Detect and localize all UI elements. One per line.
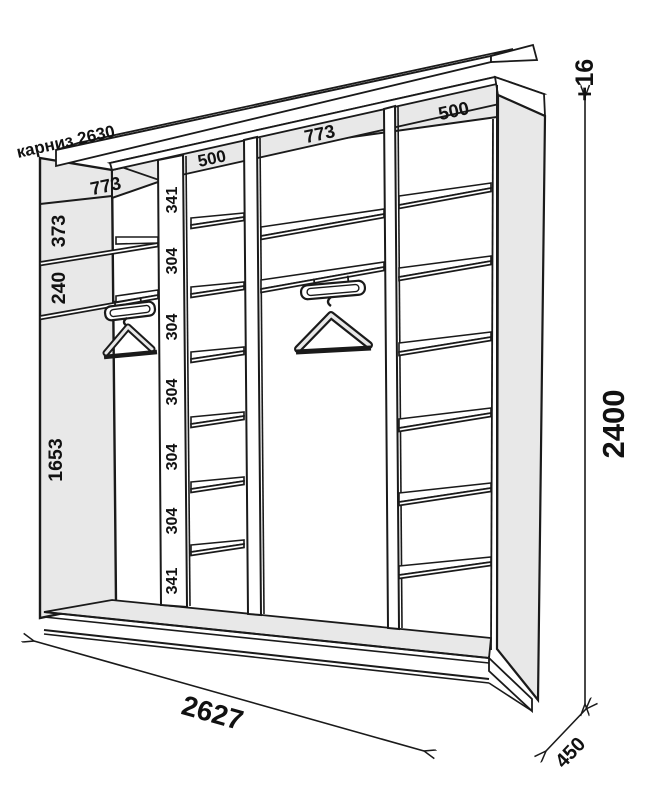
left-dim-label-1: 373: [48, 215, 70, 248]
wardrobe-dimension-diagram: +16 2400 2627 450 карниз 2630 773 500 77…: [0, 0, 650, 800]
shelf-dim-label-2: 304: [164, 248, 181, 275]
shelf-dim-label-1: 341: [164, 187, 181, 214]
section-3-shelves: [261, 209, 384, 293]
width-total-label: 2627: [178, 690, 246, 737]
left-dim-label-2: 240: [48, 272, 70, 305]
height-total-label: 2400: [596, 390, 631, 459]
diagram-canvas: +16 2400 2627 450 карниз 2630 773 500 77…: [0, 0, 650, 800]
section-2-shelves: [191, 213, 244, 556]
partition-3: [384, 106, 402, 629]
hanger-rod-2: [296, 274, 371, 352]
right-side-panel: [491, 85, 545, 700]
shelf-dim-label-3: 304: [164, 314, 181, 341]
dimension-width: 2627: [34, 641, 424, 751]
dimension-depth: 450: [546, 709, 590, 773]
floor-panel: [44, 600, 491, 658]
shelf-dim-label-7: 341: [164, 568, 181, 595]
height-extra-label: +16: [571, 59, 599, 101]
shelf-dim-label-6: 304: [164, 508, 181, 535]
left-dim-label-3: 1653: [45, 438, 67, 482]
shelf-dim-label-5: 304: [164, 444, 181, 471]
section-4-shelves: [399, 183, 491, 579]
shelf-dim-labels: 341 304 304 304 304 304 341: [164, 187, 181, 595]
dimension-height: +16 2400: [571, 59, 631, 704]
shelf-dim-label-4: 304: [164, 379, 181, 406]
partition-2: [244, 137, 264, 615]
